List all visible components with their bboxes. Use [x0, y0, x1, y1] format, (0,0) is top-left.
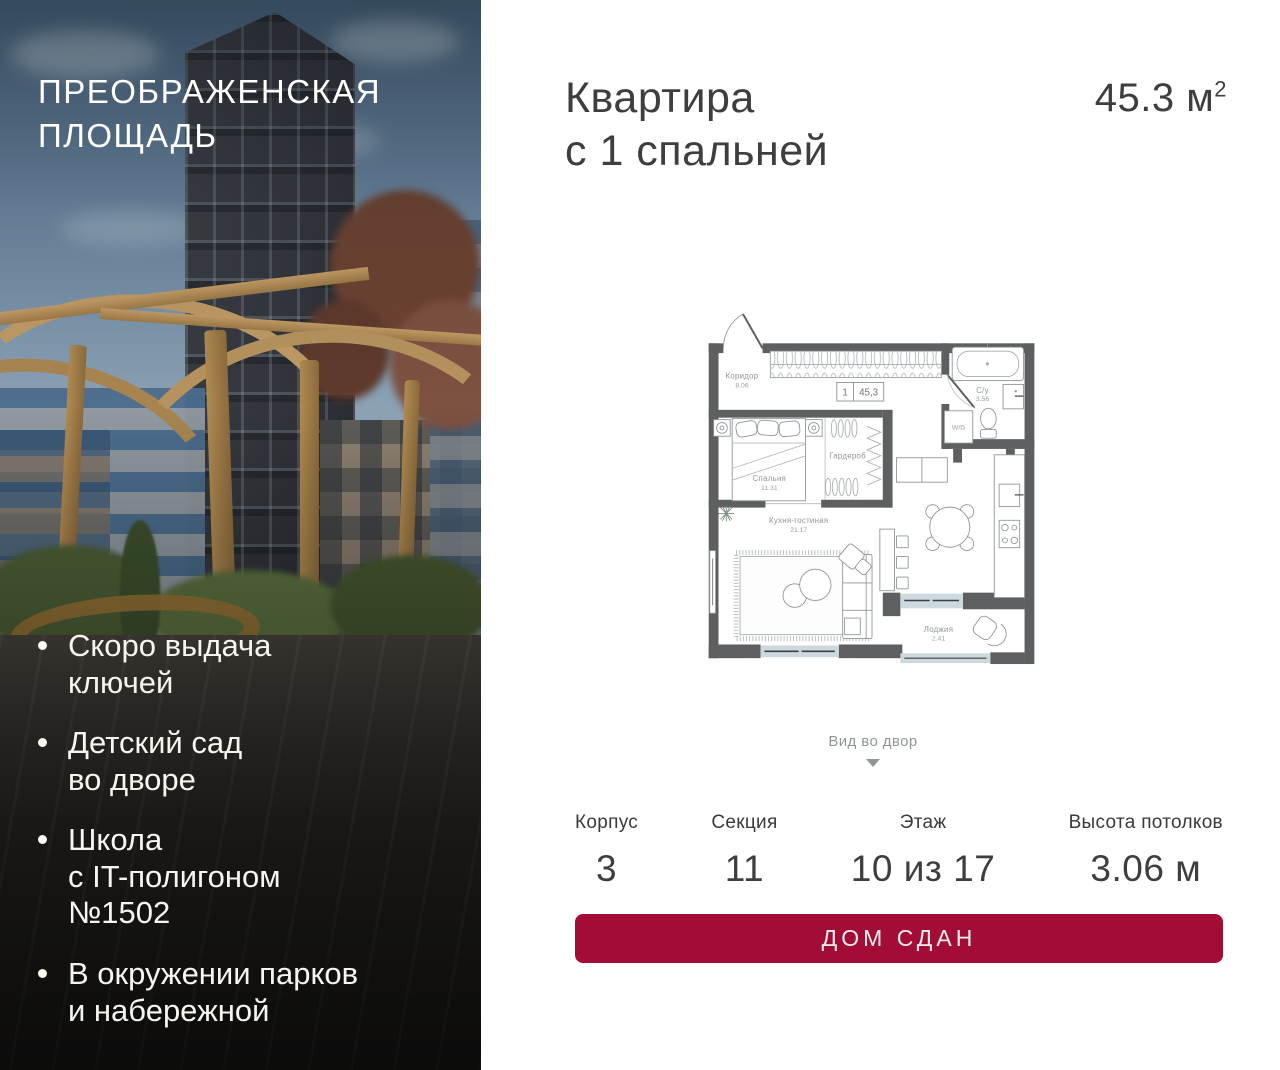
- room-area: 3.56: [976, 396, 989, 403]
- room-area: 2.41: [932, 636, 945, 643]
- toilet: [981, 408, 997, 429]
- detail-label: Секция: [711, 812, 777, 834]
- detail-label: Корпус: [575, 812, 638, 834]
- loggia-chair: [970, 612, 1010, 650]
- detail-value: 3: [575, 848, 638, 890]
- bar-stool: [896, 536, 908, 548]
- view-direction[interactable]: Вид во двор: [697, 733, 1049, 767]
- project-name: ПРЕОБРАЖЕНСКАЯ ПЛОЩАДЬ: [38, 70, 438, 157]
- detail-label: Высота потолков: [1069, 812, 1223, 834]
- area-superscript: 2: [1214, 77, 1227, 102]
- corridor-closet: [770, 351, 941, 377]
- dining-table: [930, 507, 970, 547]
- room-label: Лоджия: [924, 625, 953, 634]
- bar-stool: [896, 556, 908, 568]
- apartment-panel: Квартира с 1 спальней 45.3 м2: [481, 0, 1280, 1070]
- room-label: Кухня-гостиная: [769, 516, 828, 525]
- feature-item: Детский сад во дворе: [36, 725, 456, 798]
- unit-area: 45,3: [859, 388, 878, 399]
- room-label: Спальня: [753, 474, 786, 483]
- bar-counter: [880, 529, 895, 591]
- room-label: W/D: [952, 424, 965, 431]
- feature-item: Школа с IT-полигоном №1502: [36, 822, 456, 932]
- floor-plan: 1 45,3: [697, 294, 1049, 686]
- side-table: [845, 618, 861, 635]
- detail-floor: Этаж 10 из 17: [851, 812, 996, 890]
- room-label: Коридор: [726, 372, 759, 381]
- stove: [999, 520, 1020, 547]
- room-label: С/у: [976, 386, 989, 395]
- pouf: [800, 569, 831, 600]
- room-area: 21.17: [790, 527, 807, 534]
- feature-list: Скоро выдача ключей Детский сад во дворе…: [36, 628, 456, 1053]
- apartment-title: Квартира с 1 спальней: [565, 72, 828, 179]
- detail-section: Секция 11: [711, 812, 777, 890]
- entrance-door: [723, 314, 762, 348]
- detail-korpus: Корпус 3: [575, 812, 638, 890]
- feature-item: Скоро выдача ключей: [36, 628, 456, 701]
- bar-stool: [896, 577, 908, 589]
- feature-item: В окружении парков и набережной: [36, 956, 456, 1029]
- view-direction-label: Вид во двор: [697, 733, 1049, 750]
- detail-value: 3.06 м: [1069, 848, 1223, 890]
- apartment-area: 45.3 м2: [1095, 76, 1227, 121]
- unit-number-box: 1 45,3: [837, 382, 884, 401]
- house-delivered-button[interactable]: ДОМ СДАН: [575, 914, 1223, 963]
- unit-number: 1: [842, 388, 847, 399]
- details-row: Корпус 3 Секция 11 Этаж 10 из 17 Высота …: [575, 812, 1223, 890]
- plant: [719, 506, 735, 522]
- room-area: 8.06: [735, 382, 748, 389]
- detail-value: 10 из 17: [851, 848, 996, 890]
- listing-card: ПРЕОБРАЖЕНСКАЯ ПЛОЩАДЬ Скоро выдача ключ…: [0, 0, 1280, 1070]
- chevron-down-icon: [866, 759, 880, 767]
- area-value: 45.3 м: [1095, 76, 1214, 120]
- detail-ceiling-height: Высота потолков 3.06 м: [1069, 812, 1223, 890]
- building-photo: ПРЕОБРАЖЕНСКАЯ ПЛОЩАДЬ Скоро выдача ключ…: [0, 0, 481, 1070]
- detail-label: Этаж: [851, 812, 996, 834]
- room-area: 11.31: [761, 485, 778, 492]
- detail-value: 11: [711, 848, 777, 890]
- apartment-header: Квартира с 1 спальней 45.3 м2: [565, 72, 1227, 179]
- room-label: Гардероб: [829, 452, 866, 461]
